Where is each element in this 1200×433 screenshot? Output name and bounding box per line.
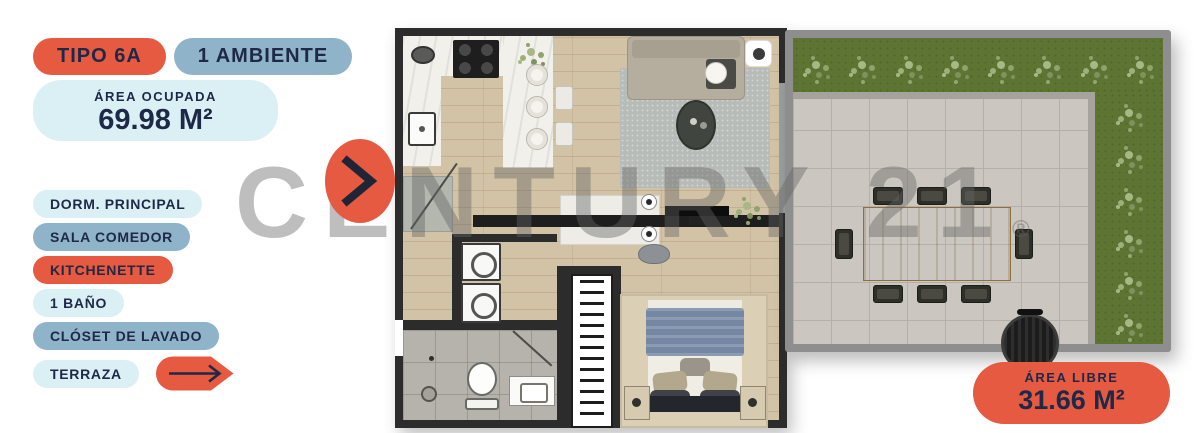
terraza-row: TERRAZA [33, 355, 235, 397]
dryer [461, 283, 501, 323]
room-labels: DORM. PRINCIPAL SALA COMEDOR KITCHENETTE… [33, 190, 235, 397]
dining-chair [1015, 229, 1033, 259]
sofa [627, 36, 745, 100]
plant [858, 61, 866, 69]
apartment-plan [395, 28, 787, 428]
terrace-curb [793, 92, 1095, 99]
plant [1125, 235, 1133, 243]
media-console [473, 215, 779, 227]
dining-chair [835, 229, 853, 259]
dining-chair [873, 187, 903, 205]
chair [555, 122, 573, 146]
grass-strip-top [793, 38, 1163, 92]
shower-drain [421, 386, 437, 402]
type-badge: TIPO 6A [33, 38, 166, 75]
pot [411, 46, 435, 64]
area-ocupada-label: ÁREA OCUPADA [33, 89, 278, 104]
side-table [705, 62, 727, 84]
terrace-tiles [793, 92, 1095, 344]
plant [1136, 61, 1144, 69]
stove [453, 40, 499, 78]
toilet [467, 362, 497, 396]
desk-chair [638, 244, 670, 264]
plant [1043, 61, 1051, 69]
bar-stool [526, 96, 548, 118]
badge-row: TIPO 6A 1 AMBIENTE [33, 38, 352, 75]
wall [452, 234, 557, 242]
plant [905, 61, 913, 69]
plant [1090, 61, 1098, 69]
next-slide-button[interactable] [325, 139, 395, 223]
right-arrow-icon [154, 355, 235, 392]
kitchen-sink [408, 112, 436, 146]
area-libre-label: ÁREA LIBRE [1025, 370, 1119, 385]
nightstand [740, 386, 766, 420]
floor-plan-slide: TIPO 6A 1 AMBIENTE ÁREA OCUPADA 69.98 M²… [0, 0, 1200, 433]
coffee-table [676, 100, 716, 150]
room-label-closet-de-lavado: CLÓSET DE LAVADO [33, 322, 219, 350]
plant [1125, 151, 1133, 159]
grass-strip-right [1095, 92, 1163, 344]
plant [812, 61, 820, 69]
ambiente-badge: 1 AMBIENTE [174, 38, 352, 75]
wall [557, 266, 621, 274]
plant [743, 202, 751, 210]
dining-chair [873, 285, 903, 303]
bed-blanket [646, 308, 744, 356]
closet-hangers [571, 274, 613, 428]
plant [1125, 109, 1133, 117]
stool [641, 226, 657, 242]
dining-chair [917, 187, 947, 205]
nightstand [624, 386, 650, 420]
dining-chair [961, 187, 991, 205]
wall-lamp [745, 40, 772, 67]
area-ocupada-value: 69.98 M² [33, 104, 278, 137]
tv [665, 206, 729, 216]
next-chevron-icon [339, 155, 381, 207]
plant [1125, 193, 1133, 201]
dining-chair [917, 285, 947, 303]
wall [395, 28, 403, 428]
toilet-tank [465, 398, 499, 410]
tv-stand [689, 216, 705, 225]
chair [555, 86, 573, 110]
dining-table [863, 207, 1011, 281]
area-ocupada-badge: ÁREA OCUPADA 69.98 M² [33, 80, 278, 141]
bar-stool [526, 64, 548, 86]
stool [641, 194, 657, 210]
bar-stool [526, 128, 548, 150]
plant [997, 61, 1005, 69]
bathroom-sink [509, 376, 555, 406]
headboard [644, 396, 746, 412]
room-label-dorm-principal: DORM. PRINCIPAL [33, 190, 202, 218]
area-libre-badge: ÁREA LIBRE 31.66 M² [973, 362, 1170, 424]
entry-opening [395, 320, 403, 356]
room-label-kitchenette: KITCHENETTE [33, 256, 173, 284]
terrace-curb [1088, 92, 1095, 344]
terrace [785, 30, 1171, 352]
room-label-terraza: TERRAZA [33, 360, 139, 388]
bbq-handle [1017, 309, 1043, 315]
wall [557, 266, 571, 428]
room-label-sala-comedor: SALA COMEDOR [33, 223, 190, 251]
area-libre-value: 31.66 M² [1018, 385, 1125, 416]
wall [395, 28, 787, 36]
plant [1125, 277, 1133, 285]
plant [1125, 319, 1133, 327]
plant [951, 61, 959, 69]
room-label-bano: 1 BAÑO [33, 289, 124, 317]
counter-plant [527, 48, 535, 56]
floor-drain [429, 356, 434, 361]
washer [461, 243, 501, 281]
dining-chair [961, 285, 991, 303]
